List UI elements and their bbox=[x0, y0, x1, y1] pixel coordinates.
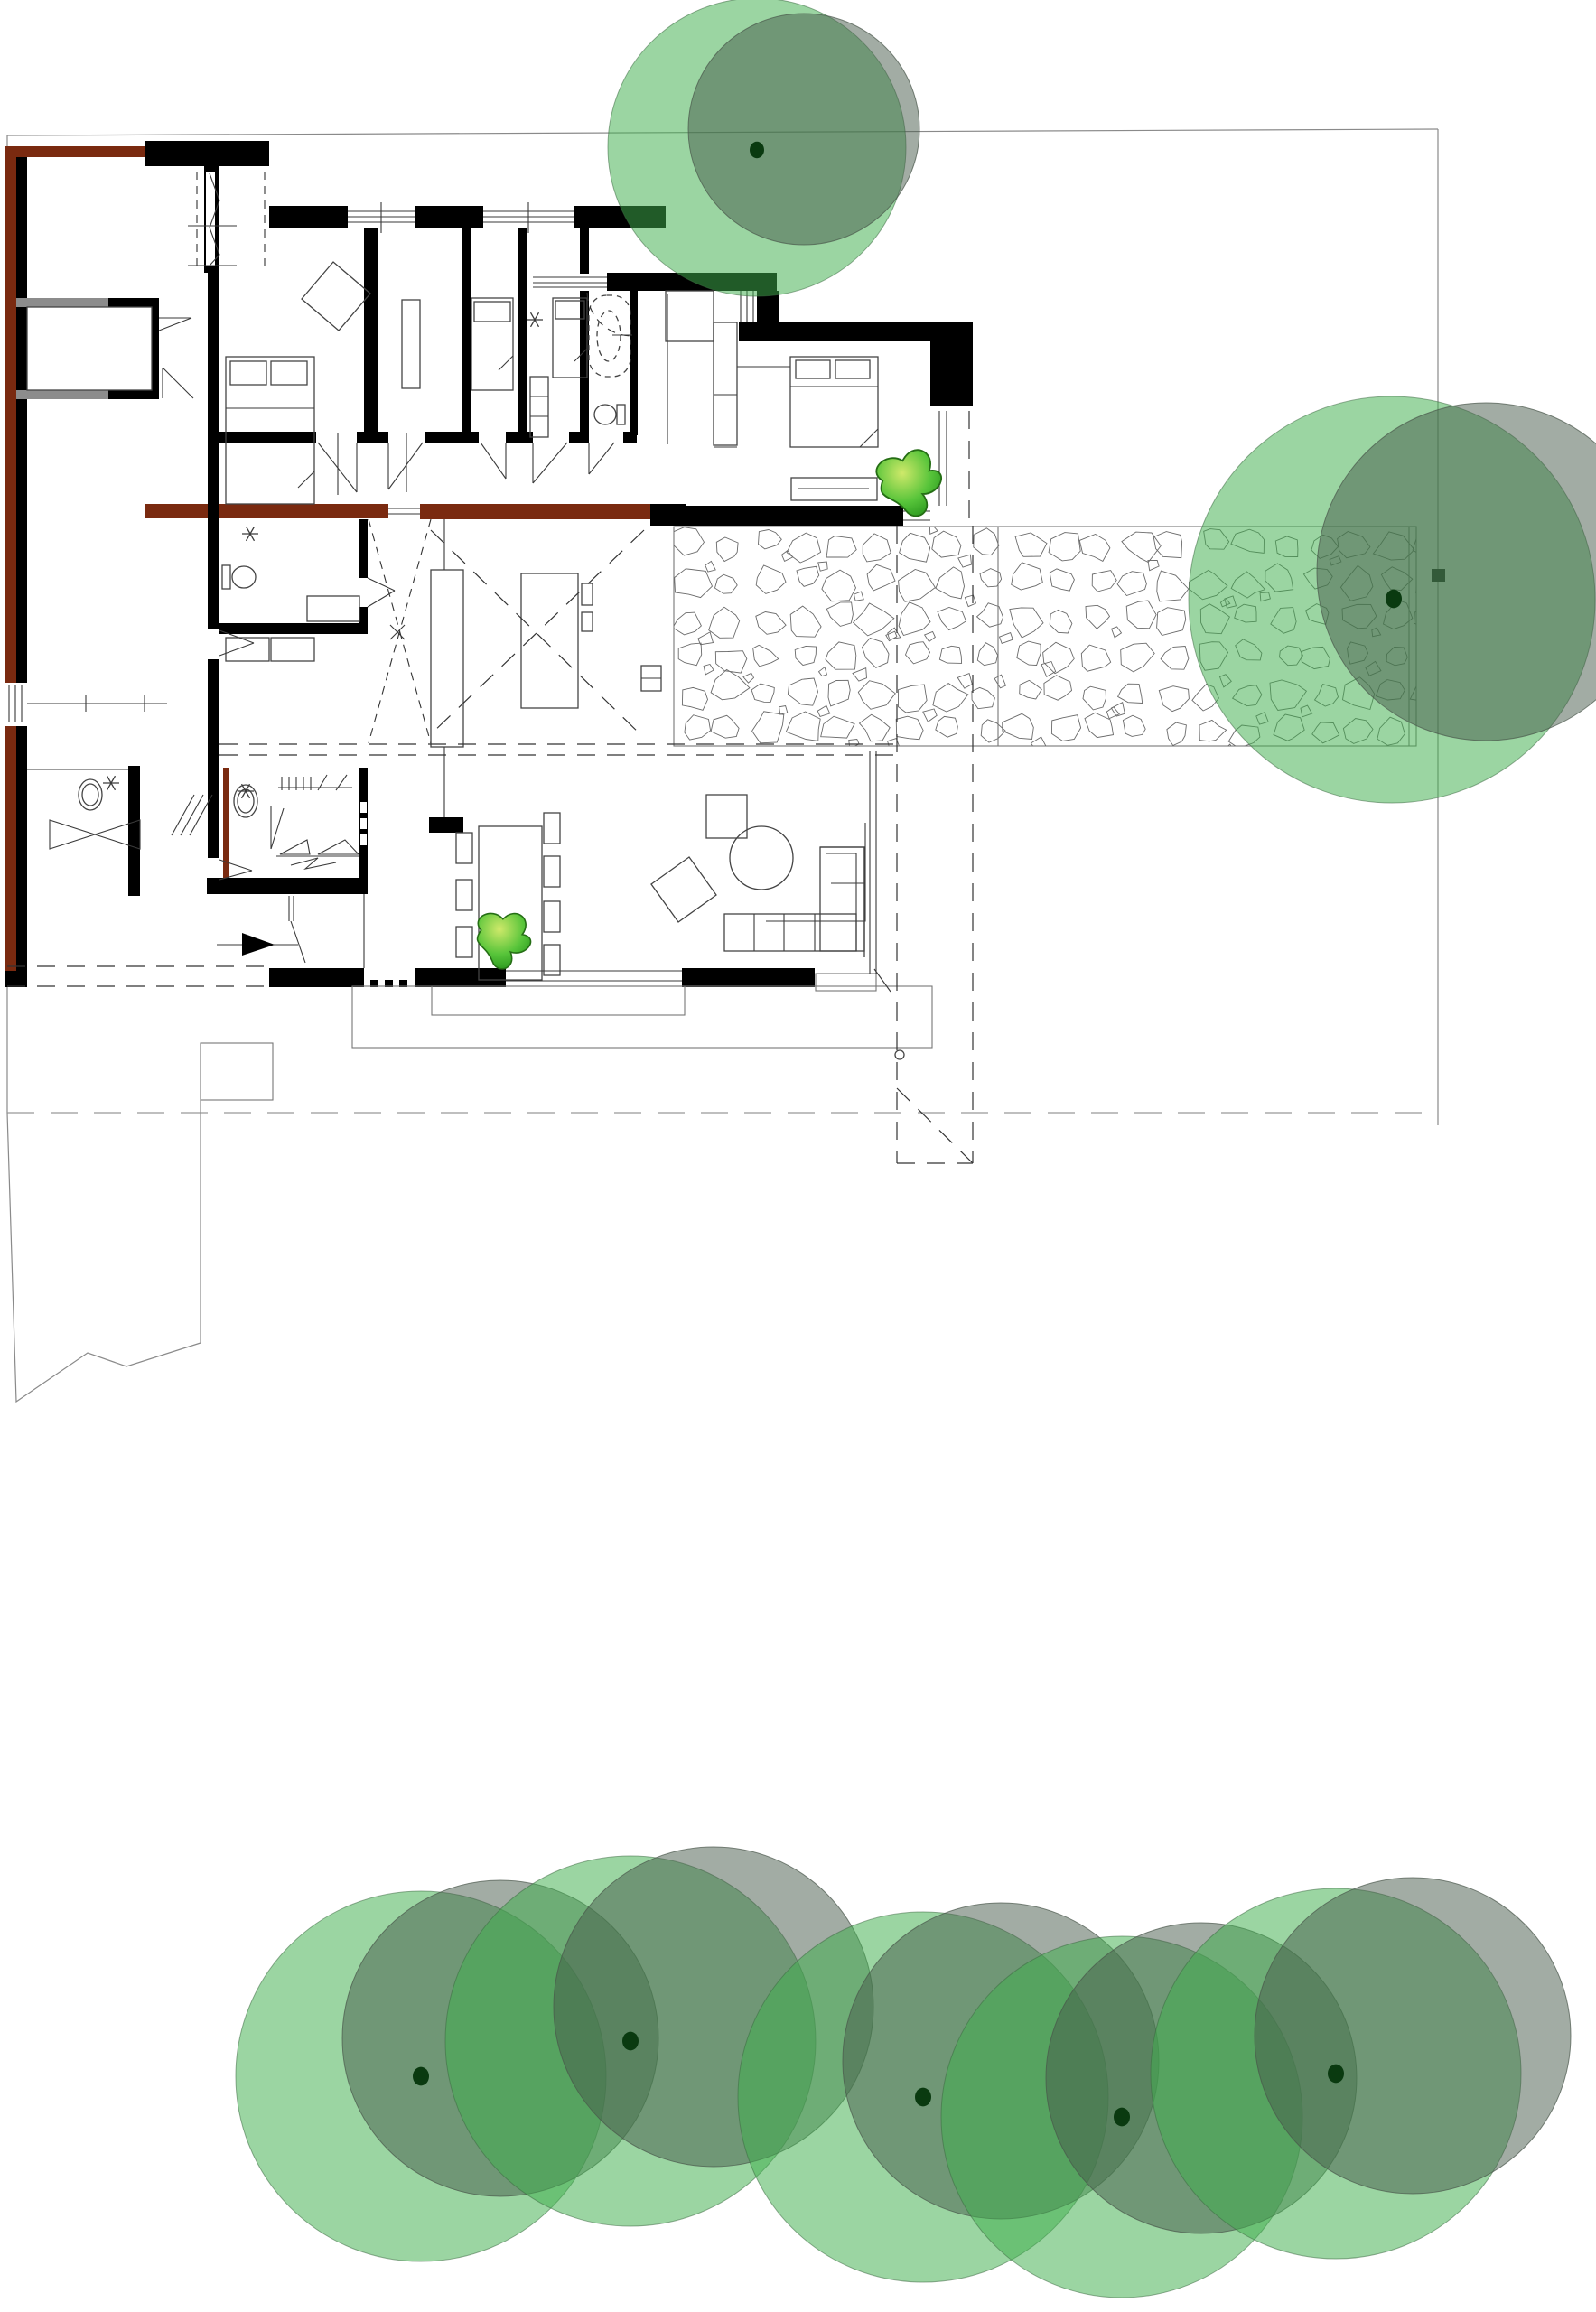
tree-row-3-trunk-dot bbox=[915, 2088, 931, 2107]
tree-right bbox=[1189, 396, 1596, 803]
site-plan-page bbox=[0, 0, 1596, 2312]
property-boundary bbox=[7, 129, 1438, 1402]
fixture-asterisk-symbol bbox=[103, 776, 119, 790]
tree-row-2-trunk-dot bbox=[622, 2032, 639, 2051]
plant-icon bbox=[466, 903, 537, 975]
tree-right-trunk-dot bbox=[1386, 590, 1402, 609]
tree-row-1-trunk-dot bbox=[413, 2067, 429, 2086]
fixture-asterisk-symbol bbox=[527, 312, 543, 327]
trees bbox=[236, 0, 1596, 2298]
site-plan-canvas bbox=[0, 0, 1596, 2312]
tree-row-5 bbox=[1151, 1878, 1571, 2259]
tree-row-5-canopy-shade bbox=[1255, 1878, 1571, 2194]
tree-top-canopy-shade bbox=[688, 14, 919, 245]
tree-row-5-trunk-dot bbox=[1328, 2065, 1344, 2084]
tree-top-trunk-dot bbox=[750, 142, 764, 158]
entrance-arrow-icon bbox=[242, 933, 275, 956]
tree-row-4-trunk-dot bbox=[1114, 2108, 1130, 2127]
tree-top bbox=[608, 0, 919, 296]
entrance-arrow bbox=[217, 933, 298, 956]
fixture-asterisk-symbol bbox=[242, 527, 258, 541]
